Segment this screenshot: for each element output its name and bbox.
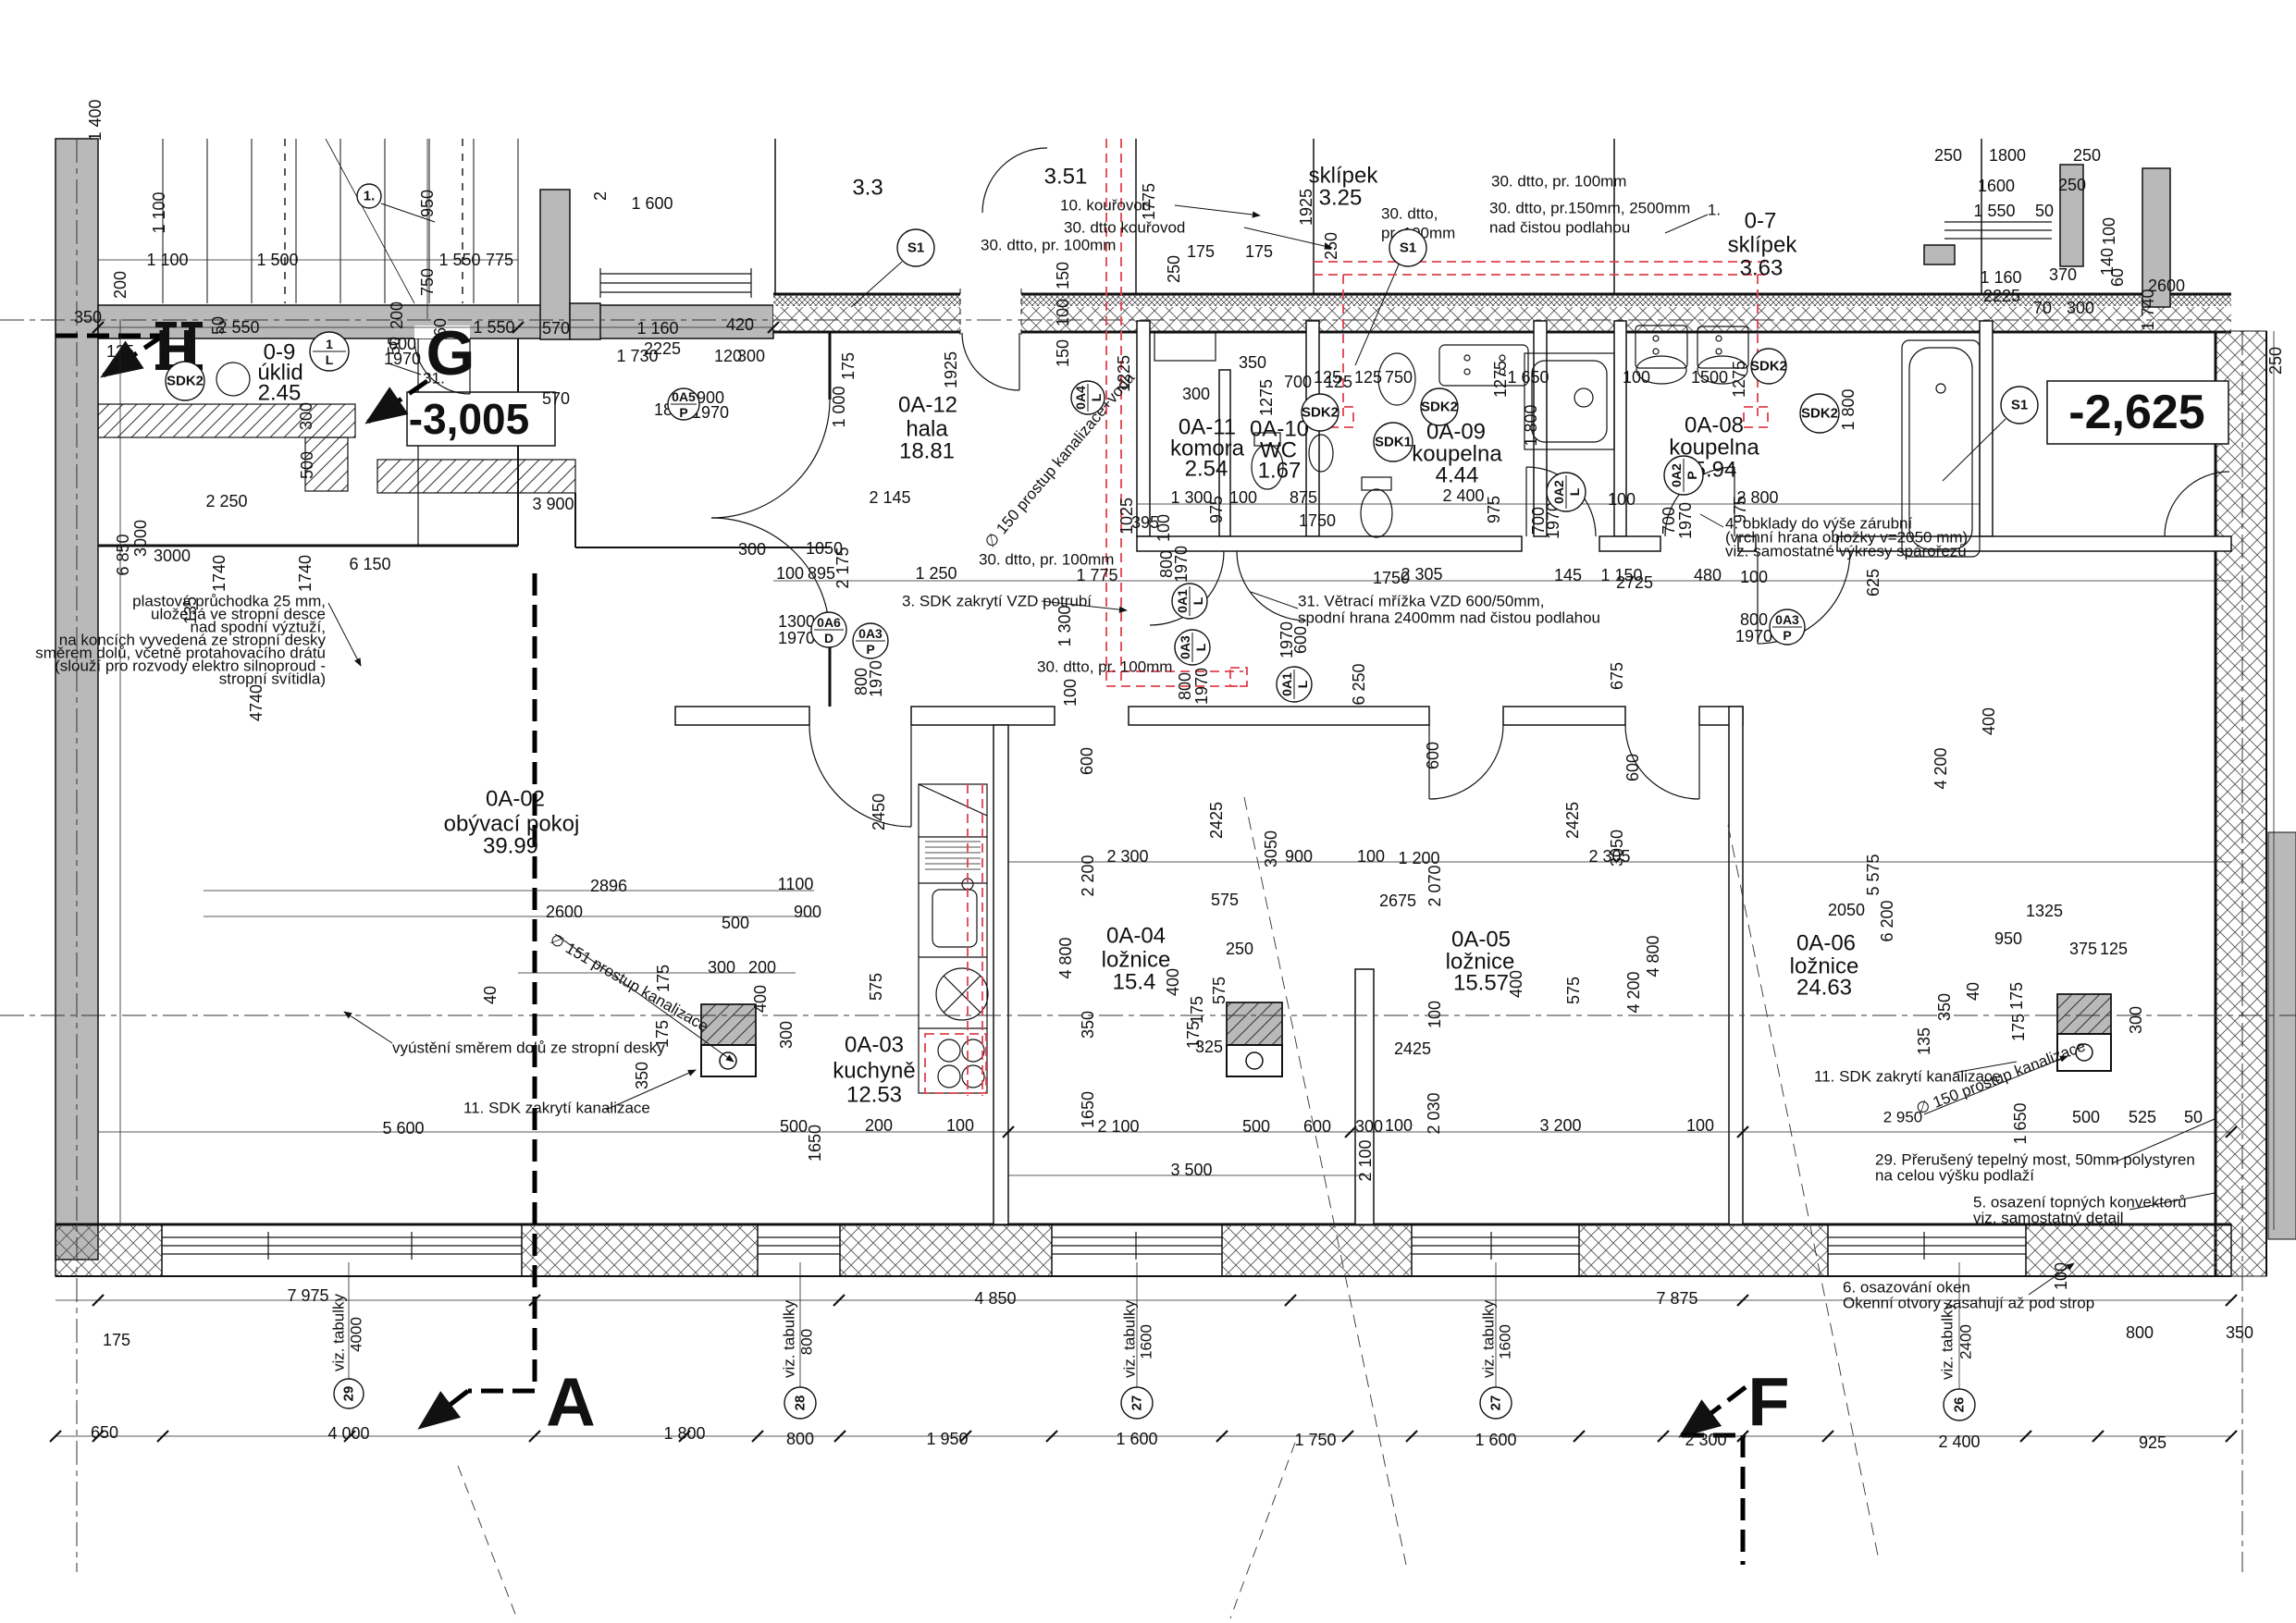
dimension-label: 975 xyxy=(1207,496,1226,523)
dimension-label: 300 xyxy=(2067,299,2094,317)
bathtub xyxy=(1902,340,1980,557)
dimension-label: 800 xyxy=(786,1430,814,1448)
dimension-label: 100 xyxy=(1054,299,1072,326)
dimension-label: 1500 xyxy=(1691,368,1728,387)
dimension-label: 400 xyxy=(1980,707,1998,735)
dimension-label: 4 200 xyxy=(1932,747,1950,789)
tag-text: 1 xyxy=(326,337,333,351)
annotation-note: vyústění směrem dolů ze stropní desky xyxy=(392,1039,665,1057)
tag-circle: 1L xyxy=(310,332,349,371)
tag-text: P xyxy=(679,405,687,420)
tag-text: 0A3 xyxy=(858,626,883,641)
annotation-note: 30. dtto kouřovod xyxy=(1064,219,1185,237)
tag-text: L xyxy=(1193,643,1208,651)
tag-circle: 0A1L xyxy=(1172,584,1207,619)
tag-text: 26 xyxy=(1952,1397,1968,1413)
dimension-label: 300 xyxy=(777,1021,796,1049)
dimension-label: 675 xyxy=(1608,662,1626,690)
annotation-note: 30. dtto, pr.150mm, 2500mm xyxy=(1489,200,1690,217)
dimension-label: 250 xyxy=(2073,146,2101,165)
dimension-label: 175 xyxy=(839,352,858,380)
dimension-label: 700 xyxy=(1660,507,1678,535)
dimension-label: 2 100 xyxy=(1097,1117,1139,1136)
dimension-label: 60 xyxy=(431,318,450,337)
dimension-label: 500 xyxy=(298,451,316,479)
dimension-label: 2 250 xyxy=(205,492,247,510)
dimension-label: 100 xyxy=(946,1116,974,1135)
dimension-label: 1 100 xyxy=(146,251,188,269)
dimension-label: 1 600 xyxy=(631,194,673,213)
annotation-note: viz. tabulky xyxy=(1480,1299,1498,1378)
tag-text: SDK2 xyxy=(1750,359,1787,375)
dimension-label: 375 xyxy=(2069,940,2097,958)
annotation-note: viz. tabulky xyxy=(1939,1301,1957,1380)
dimension-label: 2 400 xyxy=(1442,486,1484,505)
dimension-label: 2 200 xyxy=(1079,855,1097,896)
dimension-label: 2050 xyxy=(1828,901,1865,919)
tag-text: P xyxy=(1783,628,1791,643)
dimension-label: 200 xyxy=(388,301,406,329)
dimension-label: 4 000 xyxy=(327,1424,369,1443)
dimension-label: 900 xyxy=(794,903,821,921)
dimension-label: 1 550 xyxy=(473,318,514,337)
dimension-label: 1 775 xyxy=(1076,566,1117,584)
dimension-label: 370 xyxy=(2049,265,2077,284)
dimension-label: 1775 xyxy=(1140,183,1158,220)
dimension-label: 300 xyxy=(708,958,735,977)
tag-circle: SDK1 xyxy=(1374,423,1413,461)
elevation-value: -2,625 xyxy=(2068,386,2204,439)
staircase xyxy=(163,139,518,303)
dimension-label: 2 100 xyxy=(1356,1139,1375,1181)
dimension-label: 250 xyxy=(1934,146,1962,165)
dimension-label: 350 xyxy=(1935,993,1954,1021)
tag-text: 28 xyxy=(793,1396,809,1411)
tag-text: 0A3 xyxy=(1775,612,1799,627)
tag-text: 1. xyxy=(364,189,376,204)
annotation-note: viz. tabulky xyxy=(330,1293,348,1371)
dimension-label: 2 175 xyxy=(833,547,852,588)
dimension-label: 350 xyxy=(1239,353,1266,372)
dimension-label: 100 xyxy=(1357,847,1385,866)
dimension-label: 4 800 xyxy=(1644,935,1662,977)
dimension-label: 40 xyxy=(1964,982,1982,1001)
dimension-label: 4 850 xyxy=(974,1289,1016,1308)
dimension-label: 2450 xyxy=(870,793,888,830)
dimension-label: 100 xyxy=(2052,1262,2070,1290)
dimension-label: 150 xyxy=(1054,339,1072,367)
tag-circle: 0A3P xyxy=(1770,609,1805,645)
dimension-label: 480 xyxy=(1694,566,1722,584)
dimension-label: 300 xyxy=(1355,1117,1383,1136)
tag-text: 0A3 xyxy=(1178,635,1192,659)
dimension-label: 3000 xyxy=(131,520,150,557)
dimension-label: 2600 xyxy=(546,903,583,921)
tag-circle: 29 xyxy=(334,1379,364,1408)
room-label: 2.54 xyxy=(1185,457,1228,482)
dimension-label: 575 xyxy=(1211,891,1239,909)
dimension-label: 2 300 xyxy=(1106,847,1148,866)
annotation-note: 4000 xyxy=(348,1317,365,1352)
annotation-note: 1. xyxy=(1708,202,1721,219)
dimension-label: 600 xyxy=(1623,754,1642,781)
dimension-label: 2225 xyxy=(1983,287,2020,305)
dimension-label: 400 xyxy=(1507,970,1525,998)
annotation-note: 30. dtto, pr. 100mm xyxy=(981,237,1116,254)
dimension-label: 525 xyxy=(2129,1108,2156,1126)
dimension-label: 300 xyxy=(2127,1006,2145,1034)
dimension-label: 1100 xyxy=(778,875,814,893)
dimension-label: 1 730 xyxy=(616,347,658,365)
tag-text: 27 xyxy=(1488,1396,1504,1411)
room-label: 0A-06 xyxy=(1796,931,1856,956)
dimension-label: 5 575 xyxy=(1864,854,1882,895)
tag-text: 29 xyxy=(341,1386,357,1402)
dimension-label: 1 800 xyxy=(1522,404,1540,446)
floor-plan-canvas: HGAF-3,005-2,6250-9úklid2.450A-12hala18.… xyxy=(0,0,2296,1623)
dimension-label: 800 xyxy=(2126,1323,2154,1342)
annotation-note: 11. SDK zakrytí kanalizace xyxy=(463,1100,650,1117)
dimension-label: 60 xyxy=(2108,268,2127,287)
dimension-label: 250 xyxy=(1322,232,1340,260)
dimension-label: 100 xyxy=(1385,1116,1413,1135)
dimension-label: 200 xyxy=(111,271,130,299)
dimension-label: 420 xyxy=(726,315,754,334)
dimension-label: 100 xyxy=(1229,488,1257,507)
room-label: 0-7 xyxy=(1745,209,1777,234)
tag-circle: 27 xyxy=(1480,1387,1512,1419)
dimension-label: 1925 xyxy=(1297,189,1315,226)
annotation-note: 1600 xyxy=(1497,1324,1514,1359)
annotation-note: ∅ 151 prostup kanalizace xyxy=(547,930,711,1036)
tag-text: SDK2 xyxy=(1801,406,1838,422)
dimension-label: 300 xyxy=(297,402,315,430)
dimension-label: 300 xyxy=(1182,385,1210,403)
wall-bottom xyxy=(56,1224,2231,1276)
dimension-label: 175 xyxy=(653,1020,672,1048)
room-label: 0A-04 xyxy=(1106,924,1166,949)
dimension-label: 100 xyxy=(1623,368,1650,387)
tag-text: 0A4 xyxy=(1073,386,1088,410)
dimension-label: 4 800 xyxy=(1056,937,1075,978)
dimension-label: 3 500 xyxy=(1170,1161,1212,1179)
tag-circle: SDK2 xyxy=(1302,394,1339,431)
grid-letter: F xyxy=(1747,1364,1789,1441)
tag-text: L xyxy=(1089,393,1104,401)
dimension-label: 2 070 xyxy=(1426,865,1444,906)
dimension-label: 2 550 xyxy=(217,318,259,337)
dimension-label: 3 900 xyxy=(532,495,574,513)
dimension-label: 4740 xyxy=(247,684,265,721)
dimension-label: 50 xyxy=(2184,1108,2203,1126)
dimension-label: 875 xyxy=(1290,488,1317,507)
dimension-label: 100 xyxy=(776,564,804,583)
dimension-label: 500 xyxy=(2072,1108,2100,1126)
annotation-note: 30. dtto, pr. 100mm xyxy=(1491,173,1626,191)
tag-text: L xyxy=(1567,487,1582,496)
dimension-label: 950 xyxy=(418,190,437,217)
tag-circle: 0A4L xyxy=(1071,381,1105,414)
room-label: 1.67 xyxy=(1258,459,1302,484)
tag-circle: 0A6D xyxy=(811,612,846,647)
dimension-label: 1970 xyxy=(1172,546,1191,583)
dimension-label: 1650 xyxy=(1079,1091,1097,1128)
dimension-label: 350 xyxy=(1079,1011,1097,1039)
tag-circle: 0A5P xyxy=(668,388,699,420)
room-label: 2.45 xyxy=(258,381,302,406)
dimension-label: 2 xyxy=(591,191,610,201)
dimension-label: 350 xyxy=(633,1062,651,1089)
dimension-label: 2 030 xyxy=(1425,1092,1443,1134)
dimension-label: 125 xyxy=(2100,940,2128,958)
toilet xyxy=(1361,489,1392,537)
annotation-note: 31. Větrací mřížka VZD 600/50mm, xyxy=(1298,593,1544,610)
room-label: obývací pokoj xyxy=(444,812,580,837)
annotation-note: 2 950 xyxy=(1883,1109,1923,1126)
dimension-label: 70 xyxy=(2033,299,2052,317)
dimension-label: 175 xyxy=(654,965,673,992)
room-label: 0A-05 xyxy=(1451,928,1511,953)
dimension-label: 1 600 xyxy=(1475,1431,1516,1449)
dimension-label: 570 xyxy=(542,389,570,408)
dimension-label: 1 800 xyxy=(663,1424,705,1443)
dimension-label: 1 500 xyxy=(256,251,298,269)
tag-circle: 26 xyxy=(1944,1389,1975,1420)
dimension-label: 100 xyxy=(1686,1116,1714,1135)
dimension-label: 950 xyxy=(1994,929,2022,948)
room-label: 15.57 xyxy=(1453,971,1509,996)
dimension-label: 1225 xyxy=(1115,355,1133,392)
dimension-label: 200 xyxy=(748,958,776,977)
room-label: 3.63 xyxy=(1740,256,1784,281)
tag-text: S1 xyxy=(2011,398,2028,413)
tag-circle: 27 xyxy=(1121,1387,1153,1419)
dimension-label: 2675 xyxy=(1379,891,1416,910)
annotation-note: na celou výšku podlaží xyxy=(1875,1167,2034,1185)
room-label: kuchyně xyxy=(833,1059,915,1084)
dimension-label: 1 550 xyxy=(1973,202,2015,220)
dimension-label: 3050 xyxy=(1262,830,1280,867)
dimension-label: 2896 xyxy=(590,877,627,895)
tag-text: L xyxy=(1295,680,1310,688)
dimension-label: 1 650 xyxy=(2011,1102,2030,1144)
uklid-sink xyxy=(216,363,250,396)
dimension-label: 3050 xyxy=(1608,830,1626,867)
tag-text: L xyxy=(326,352,334,367)
dimension-label: 1 250 xyxy=(915,564,957,583)
dimension-label: 1 300 xyxy=(1055,605,1074,646)
room-label: 3.3 xyxy=(852,176,883,201)
dimension-label: 300 xyxy=(737,347,765,365)
tag-text: D xyxy=(824,631,833,646)
dimension-label: 1740 xyxy=(296,555,315,592)
annotation-note: viz. tabulky xyxy=(1121,1299,1139,1378)
dimension-label: 175 xyxy=(1187,242,1215,261)
dimension-label: 1 800 xyxy=(1839,388,1858,430)
dimension-label: 125 xyxy=(1354,368,1382,387)
dimension-label: 1 100 xyxy=(150,191,168,233)
room-label: 18.81 xyxy=(899,439,955,464)
dimension-label: 1325 xyxy=(2026,902,2063,920)
dimension-label: 175 xyxy=(1245,242,1273,261)
room-label: ložnice xyxy=(1102,948,1171,973)
annotation-note: 30. dtto, xyxy=(1381,205,1438,223)
room-label: 24.63 xyxy=(1796,976,1852,1001)
dimension-label: 625 xyxy=(1864,569,1882,596)
dimension-label: 6 200 xyxy=(1878,900,1896,941)
dimension-label: 3000 xyxy=(154,547,191,565)
dimension-label: 1 400 xyxy=(86,99,105,141)
dimension-label: 135 xyxy=(106,342,134,361)
dimension-label: 750 xyxy=(1385,368,1413,387)
tag-text: 0A1 xyxy=(1279,672,1294,696)
room-label: sklípek xyxy=(1728,233,1798,258)
dimension-label: 750 xyxy=(418,268,437,296)
dimension-label: 925 xyxy=(2139,1433,2166,1452)
dimension-label: 1 740 xyxy=(2139,289,2157,330)
dimension-label: 125 xyxy=(1314,368,1341,387)
tag-text: SDK2 xyxy=(1302,405,1339,421)
kitchen-unit xyxy=(919,784,988,1093)
dimension-label: 100 xyxy=(1740,568,1768,586)
room-label: 12.53 xyxy=(846,1083,902,1108)
annotation-note: spodní hrana 2400mm nad čistou podlahou xyxy=(1298,609,1600,627)
dimension-label: 1600 xyxy=(1978,177,2015,195)
room-label: 39.99 xyxy=(483,834,538,859)
tag-text: 0A6 xyxy=(817,615,841,630)
tag-circle: 0A3L xyxy=(1175,630,1210,665)
dimension-label: 775 xyxy=(486,251,513,269)
dimension-label: 1970 xyxy=(1676,502,1695,539)
dimension-label: 1 000 xyxy=(830,386,848,427)
dimension-label: 575 xyxy=(1210,977,1228,1004)
room-label: 3.51 xyxy=(1044,165,1088,190)
dimension-label: 6 850 xyxy=(114,534,132,575)
tag-text: 0A1 xyxy=(1175,589,1190,613)
dimension-label: 700 xyxy=(1284,373,1312,391)
floor-plan-sheet: HGAF-3,005-2,6250-9úklid2.450A-12hala18.… xyxy=(0,0,2296,1623)
kitchen-sink xyxy=(932,890,977,947)
tag-circle: S1 xyxy=(2001,387,2038,424)
tag-text: 0A2 xyxy=(1669,463,1684,487)
dimension-label: 175 xyxy=(103,1331,130,1349)
room-label: hala xyxy=(906,417,948,442)
tag-circle: SDK2 xyxy=(166,362,204,400)
grid-letter: A xyxy=(546,1364,595,1441)
room-label: 0A-03 xyxy=(845,1033,904,1058)
dimension-label: 1970 xyxy=(867,660,885,697)
dimension-label: 2425 xyxy=(1207,802,1226,839)
dimension-label: 2 400 xyxy=(1938,1432,1980,1451)
tag-text: 0A2 xyxy=(1551,480,1566,504)
annotation-note: 2400 xyxy=(1957,1324,1975,1359)
dimension-label: 1275 xyxy=(1730,361,1748,398)
tag-text: S1 xyxy=(1400,240,1416,256)
dimension-label: 2425 xyxy=(1394,1039,1431,1058)
dimension-label: 175 xyxy=(2007,982,2026,1010)
dimension-label: 135 xyxy=(181,596,200,624)
dimension-label: 100 xyxy=(1426,1001,1444,1028)
dimension-label: 500 xyxy=(780,1117,808,1136)
dimension-label: 250 xyxy=(2266,347,2285,375)
room-label: 0A-02 xyxy=(486,787,545,812)
annotation-note: 31. xyxy=(423,370,445,387)
dimension-label: 900 xyxy=(1285,847,1313,866)
dimension-label: 800 xyxy=(1176,672,1194,700)
dimension-label: 1275 xyxy=(1257,379,1276,416)
dimension-label: 500 xyxy=(1242,1117,1270,1136)
dimension-label: 1 750 xyxy=(1294,1431,1336,1449)
dimension-label: 1750 xyxy=(1299,511,1336,530)
dimension-label: 150 xyxy=(1054,262,1072,289)
tag-circle: SDK2 xyxy=(1421,388,1458,425)
tag-text: P xyxy=(1685,471,1699,479)
annotation-note: viz. samostatný detail xyxy=(1973,1210,2124,1227)
tag-text: SDK2 xyxy=(167,374,204,389)
elevation-value: -3,005 xyxy=(409,395,529,443)
dimension-label: 145 xyxy=(1554,566,1582,584)
dimension-label: 1 200 xyxy=(1398,849,1439,867)
dimension-label: 1970 xyxy=(384,350,421,368)
dimension-label: 350 xyxy=(74,308,102,326)
dimension-label: 2 145 xyxy=(869,488,910,507)
dimension-label: 975 xyxy=(1731,496,1749,523)
dimension-label: 50 xyxy=(2035,202,2054,220)
dimension-label: 2 305 xyxy=(1401,565,1442,584)
dimension-label: 5 600 xyxy=(382,1119,424,1137)
annotation-note: 10. kouřovod xyxy=(1060,197,1151,215)
dimension-label: 1970 xyxy=(1278,621,1296,658)
tag-text: SDK2 xyxy=(1421,400,1458,415)
tag-circle: SDK2 xyxy=(1800,394,1839,433)
dimension-label: 200 xyxy=(865,1116,893,1135)
komora-shelf xyxy=(1154,333,1216,361)
dimension-label: 1970 xyxy=(1735,627,1772,646)
tag-text: SDK1 xyxy=(1375,435,1412,450)
dimension-label: 100 xyxy=(2100,217,2118,245)
annotation-note: ∅ 150 prostup kanalizace+voda xyxy=(981,369,1139,551)
tag-circle: 28 xyxy=(784,1387,816,1419)
annotation-note: viz. tabulky xyxy=(781,1299,798,1378)
annotation-note: stropní svítidla) xyxy=(219,670,326,688)
dimension-label: 1970 xyxy=(1192,668,1211,705)
tag-text: 0A5 xyxy=(672,389,696,404)
dimension-label: 575 xyxy=(867,973,885,1001)
dimension-label: 6 150 xyxy=(349,555,390,573)
annotation-note: Okenní otvory zasahují až pod strop xyxy=(1843,1295,2094,1312)
dimension-label: 1 300 xyxy=(1170,488,1212,507)
annotation-note: viz. samostatné výkresy spárořezů xyxy=(1725,543,1967,560)
dimension-label: 395 xyxy=(1131,513,1159,532)
dimension-label: 2425 xyxy=(1563,802,1582,839)
dimension-label: 1 550 xyxy=(438,251,480,269)
tag-circle: 0A2L xyxy=(1547,473,1586,511)
dimension-label: 4 200 xyxy=(1624,971,1643,1013)
dimension-label: 300 xyxy=(738,540,766,559)
dimension-label: 600 xyxy=(1078,747,1096,775)
tag-text: L xyxy=(1191,596,1205,605)
dimension-label: 1 600 xyxy=(1116,1430,1157,1448)
dimension-label: 40 xyxy=(481,986,500,1004)
dimension-label: 250 xyxy=(2058,176,2086,194)
dimension-label: 400 xyxy=(751,985,770,1013)
annotation-note: nad čistou podlahou xyxy=(1489,219,1630,237)
room-label: 4.44 xyxy=(1436,463,1479,488)
dimension-label: 1925 xyxy=(942,351,960,388)
dimension-label: 7 875 xyxy=(1656,1289,1697,1308)
room-label: sklípek xyxy=(1309,164,1379,189)
wall-right xyxy=(2215,331,2296,1276)
